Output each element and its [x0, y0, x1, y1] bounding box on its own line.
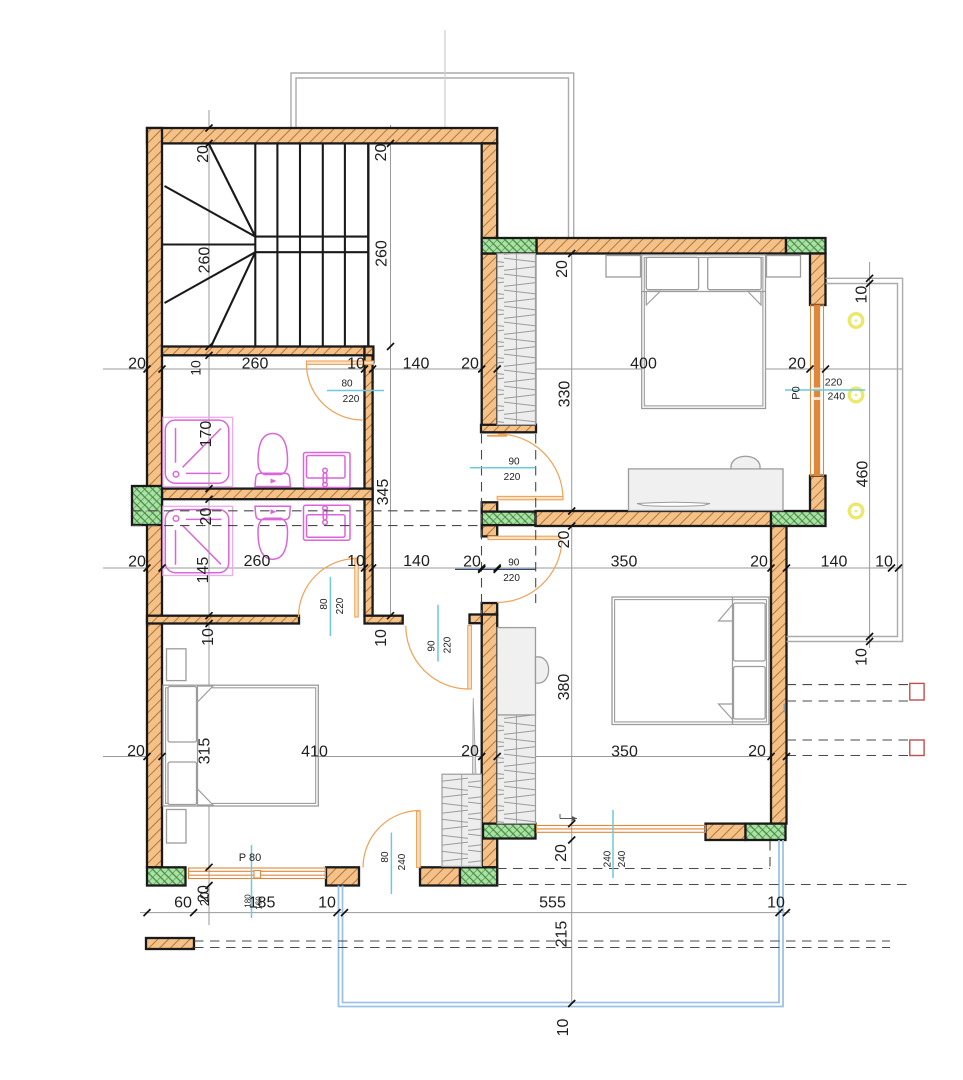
svg-text:20: 20 — [195, 145, 212, 163]
svg-text:80: 80 — [319, 598, 330, 610]
svg-text:10: 10 — [854, 286, 871, 304]
svg-text:240: 240 — [617, 850, 628, 867]
svg-text:260: 260 — [197, 247, 214, 274]
svg-text:90: 90 — [508, 558, 520, 569]
svg-text:20: 20 — [373, 144, 390, 162]
svg-text:145: 145 — [195, 557, 212, 584]
svg-text:400: 400 — [630, 356, 657, 373]
svg-text:140: 140 — [821, 554, 848, 571]
svg-text:90: 90 — [508, 457, 520, 468]
svg-text:20: 20 — [553, 844, 570, 862]
svg-text:240: 240 — [828, 391, 846, 403]
svg-text:220: 220 — [503, 573, 520, 584]
svg-text:555: 555 — [539, 895, 566, 912]
svg-text:10: 10 — [347, 553, 365, 570]
svg-text:20: 20 — [461, 743, 479, 760]
svg-text:260: 260 — [244, 553, 271, 570]
svg-text:80: 80 — [341, 379, 353, 390]
svg-text:10: 10 — [875, 554, 893, 571]
svg-text:140: 140 — [403, 553, 430, 570]
svg-text:P 80: P 80 — [239, 852, 261, 864]
svg-text:60: 60 — [174, 895, 192, 912]
svg-text:80: 80 — [380, 851, 391, 863]
svg-text:185: 185 — [249, 895, 276, 912]
svg-text:20: 20 — [748, 743, 766, 760]
svg-text:20: 20 — [127, 743, 145, 760]
svg-text:10: 10 — [767, 895, 785, 912]
svg-text:215: 215 — [554, 921, 571, 948]
svg-text:P0: P0 — [791, 386, 803, 399]
svg-text:20: 20 — [556, 531, 573, 549]
svg-text:220: 220 — [504, 472, 521, 483]
svg-text:10: 10 — [347, 356, 365, 373]
svg-text:10: 10 — [555, 1019, 572, 1037]
svg-text:20: 20 — [128, 356, 146, 373]
svg-text:20: 20 — [197, 892, 212, 906]
svg-text:10: 10 — [200, 628, 217, 646]
svg-text:10: 10 — [318, 895, 336, 912]
svg-text:20: 20 — [461, 356, 479, 373]
svg-text:315: 315 — [197, 738, 214, 765]
svg-text:220: 220 — [343, 394, 360, 405]
svg-text:10: 10 — [854, 648, 871, 666]
svg-text:220: 220 — [335, 597, 346, 614]
svg-text:20: 20 — [128, 554, 146, 571]
svg-text:240: 240 — [397, 853, 408, 870]
svg-text:140: 140 — [403, 356, 430, 373]
svg-text:20: 20 — [750, 554, 768, 571]
svg-text:20: 20 — [788, 356, 806, 373]
svg-text:380: 380 — [556, 674, 573, 701]
svg-text:10: 10 — [373, 629, 390, 647]
svg-text:170: 170 — [198, 421, 215, 448]
svg-text:20: 20 — [554, 260, 571, 278]
svg-text:330: 330 — [557, 381, 574, 408]
svg-text:240: 240 — [603, 850, 614, 867]
svg-text:90: 90 — [427, 640, 438, 652]
svg-text:260: 260 — [374, 240, 391, 267]
svg-text:20: 20 — [198, 508, 215, 526]
svg-text:410: 410 — [301, 744, 328, 761]
svg-text:10: 10 — [188, 360, 204, 376]
svg-text:350: 350 — [611, 554, 638, 571]
svg-text:345: 345 — [375, 479, 392, 506]
svg-text:220: 220 — [443, 636, 454, 653]
svg-text:350: 350 — [611, 744, 638, 761]
svg-text:20: 20 — [463, 554, 481, 571]
svg-text:260: 260 — [242, 356, 269, 373]
svg-text:460: 460 — [855, 461, 872, 488]
svg-text:220: 220 — [825, 377, 843, 389]
